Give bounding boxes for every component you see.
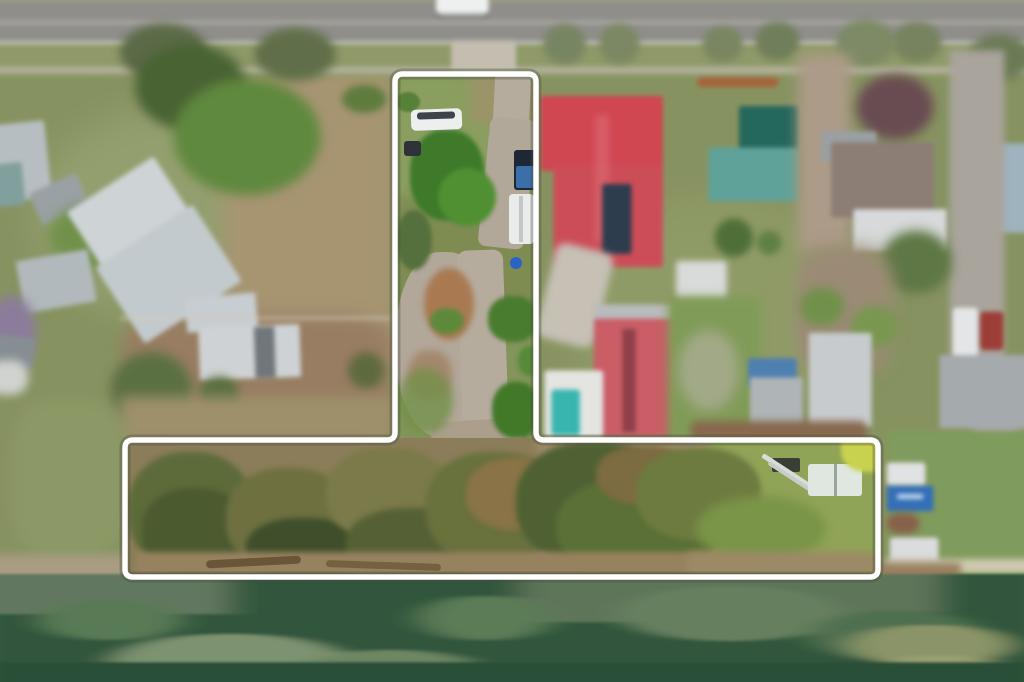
- caravan-roof-line: [519, 196, 523, 242]
- garden-shed-panel-line: [834, 464, 837, 496]
- van-windows: [417, 111, 455, 119]
- blue-ute-tray: [516, 166, 534, 188]
- blue-barrel: [510, 257, 522, 269]
- dark-car-by-bush: [404, 141, 421, 156]
- water-reflection-4: [620, 586, 840, 641]
- lot-grass-tufts: [398, 368, 453, 434]
- bar-fence-line: [123, 573, 885, 576]
- lot-tree-dark-left: [396, 210, 432, 270]
- lot-bush-right-b: [492, 382, 540, 438]
- loop-island-green-tuft: [430, 308, 464, 334]
- lot-bush-large-2: [438, 168, 496, 226]
- aerial-photo: [0, 0, 1024, 682]
- water-reflection-6: [40, 600, 180, 640]
- water-dark-bottom: [0, 662, 1024, 682]
- lot-bush-right-a: [488, 296, 538, 342]
- water-reflection-3: [420, 596, 550, 640]
